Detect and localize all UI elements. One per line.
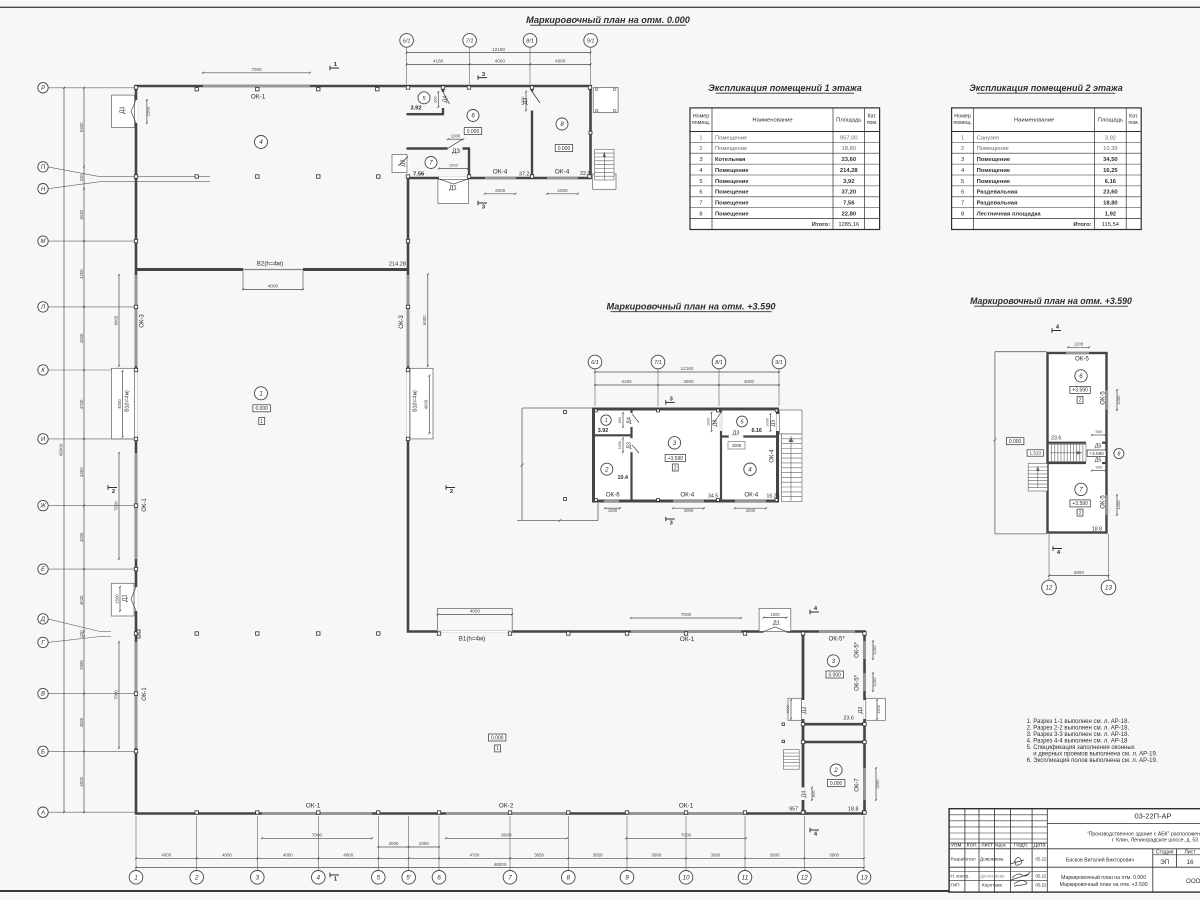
svg-text:Разработал: Разработал	[951, 857, 976, 862]
svg-text:2000: 2000	[495, 188, 506, 193]
svg-text:1500: 1500	[449, 163, 459, 168]
svg-text:2: 2	[1079, 398, 1082, 404]
svg-text:4: 4	[317, 875, 321, 882]
svg-text:И: И	[41, 437, 46, 443]
svg-text:2: 2	[194, 875, 199, 882]
svg-text:0.000: 0.000	[828, 672, 841, 678]
svg-text:7.56: 7.56	[413, 172, 425, 178]
svg-text:11: 11	[742, 875, 749, 882]
svg-text:ОК-4: ОК-4	[493, 169, 508, 176]
svg-text:Маркировочный план на отм. +3.: Маркировочный план на отм. +3.590	[606, 302, 776, 312]
svg-text:6. Экспликация полов выполнена: 6. Экспликация полов выполнена см. л. АР…	[1027, 758, 1158, 764]
svg-text:3: 3	[961, 157, 964, 163]
svg-text:9/1: 9/1	[775, 360, 783, 366]
svg-text:7000: 7000	[681, 833, 692, 838]
svg-text:ОК-5: ОК-5	[1100, 495, 1106, 509]
svg-text:Помещение: Помещение	[715, 179, 749, 185]
svg-text:П: П	[41, 165, 46, 171]
svg-text:5: 5	[377, 875, 381, 882]
svg-text:1200: 1200	[1116, 395, 1121, 405]
svg-text:1: 1	[134, 875, 138, 882]
svg-text:6: 6	[1079, 373, 1083, 380]
svg-text:5. Спецификация заполнения око: 5. Спецификация заполнения оконных	[1027, 745, 1135, 751]
svg-text:Котельная: Котельная	[715, 157, 745, 163]
svg-text:4000: 4000	[222, 852, 232, 857]
svg-text:3: 3	[699, 157, 702, 163]
svg-text:6: 6	[699, 190, 702, 196]
svg-text:1: 1	[604, 418, 607, 424]
svg-text:Помещение: Помещение	[977, 146, 1009, 152]
svg-text:0.000: 0.000	[830, 781, 843, 787]
svg-text:Кол.: Кол.	[967, 843, 978, 849]
svg-text:Экспликация помещений 2 этажа: Экспликация помещений 2 этажа	[969, 83, 1122, 93]
svg-text:4: 4	[259, 139, 263, 146]
svg-text:+3.590: +3.590	[1090, 451, 1105, 456]
svg-text:8: 8	[961, 212, 964, 218]
svg-text:1000: 1000	[707, 418, 711, 426]
svg-text:1000: 1000	[520, 96, 525, 106]
svg-text:4000: 4000	[555, 59, 566, 64]
svg-text:13: 13	[1105, 585, 1112, 592]
svg-text:4000: 4000	[495, 59, 506, 64]
svg-text:12: 12	[801, 875, 809, 882]
svg-text:В1(h=4м): В1(h=4м)	[413, 390, 419, 412]
svg-text:3. Разрез 3-3 выполнен см. л.: 3. Разрез 3-3 выполнен см. л. АР-18.	[1027, 732, 1130, 738]
svg-text:34,50: 34,50	[1103, 157, 1118, 163]
svg-text:3850: 3850	[593, 852, 603, 857]
svg-text:помещ.: помещ.	[692, 120, 711, 126]
svg-text:6: 6	[961, 190, 964, 196]
svg-text:1500: 1500	[770, 612, 780, 617]
svg-text:48000: 48000	[494, 862, 507, 867]
svg-text:Помещение: Помещение	[715, 135, 747, 141]
svg-text:05.22: 05.22	[1036, 857, 1048, 862]
svg-text:1200: 1200	[1074, 342, 1084, 347]
svg-text:Помещение: Помещение	[715, 146, 747, 152]
svg-text:7/1: 7/1	[466, 38, 474, 44]
svg-text:214.28: 214.28	[389, 262, 406, 268]
svg-text:1000: 1000	[786, 705, 790, 713]
svg-text:Площадь: Площадь	[1098, 118, 1123, 124]
svg-text:Маркировочный план на отм. 0.0: Маркировочный план на отм. 0.000	[526, 15, 691, 25]
svg-text:ОК-1: ОК-1	[142, 687, 148, 701]
svg-text:2000: 2000	[557, 188, 568, 193]
svg-text:А: А	[40, 810, 45, 816]
svg-text:2: 2	[699, 146, 702, 152]
svg-text:4000: 4000	[161, 852, 171, 857]
svg-text:8: 8	[699, 212, 702, 218]
svg-text:Санузел: Санузел	[977, 135, 1000, 141]
svg-text:0.000: 0.000	[467, 129, 480, 135]
svg-text:957,00: 957,00	[840, 135, 858, 141]
svg-text:3: 3	[673, 440, 677, 447]
svg-text:5': 5'	[406, 875, 412, 882]
svg-text:10: 10	[682, 875, 690, 882]
svg-text:2000: 2000	[746, 508, 756, 513]
svg-text:Изм.: Изм.	[951, 843, 963, 849]
svg-text:ОК-1: ОК-1	[679, 803, 694, 810]
svg-text:+3.590: +3.590	[668, 456, 684, 462]
svg-text:7000: 7000	[251, 67, 262, 72]
svg-text:4200: 4200	[79, 532, 84, 542]
svg-text:48000: 48000	[59, 443, 64, 456]
svg-text:1005: 1005	[732, 443, 742, 448]
svg-text:3900: 3900	[711, 852, 721, 857]
svg-text:4700: 4700	[79, 399, 84, 409]
svg-text:Итого:: Итого:	[812, 222, 830, 228]
svg-text:10.4: 10.4	[618, 475, 629, 481]
svg-text:4160: 4160	[621, 379, 632, 384]
svg-text:Маркировочный план на отм. 0.0: Маркировочный план на отм. 0.000	[1061, 874, 1146, 881]
svg-text:Лист: Лист	[981, 843, 993, 849]
svg-text:1: 1	[961, 135, 964, 141]
svg-text:ОК-1: ОК-1	[251, 94, 266, 101]
svg-text:957: 957	[789, 807, 798, 813]
svg-text:В: В	[41, 692, 45, 698]
svg-text:4200: 4200	[79, 269, 84, 279]
svg-text:ОК-5: ОК-5	[1075, 355, 1089, 362]
svg-text:ОК-5: ОК-5	[1100, 391, 1106, 405]
svg-text:37,20: 37,20	[842, 190, 857, 196]
svg-text:3900: 3900	[770, 852, 780, 857]
svg-text:Д5: Д5	[771, 420, 777, 427]
svg-text:7000: 7000	[114, 501, 119, 511]
svg-text:Раздевальная: Раздевальная	[977, 201, 1018, 207]
svg-text:Д1: Д1	[773, 621, 780, 627]
svg-text:Д5: Д5	[1095, 458, 1102, 464]
svg-text:23.6: 23.6	[843, 716, 854, 722]
svg-text:Помещение: Помещение	[715, 168, 749, 174]
svg-text:115,54: 115,54	[1102, 222, 1120, 228]
svg-text:23,60: 23,60	[1103, 190, 1118, 196]
svg-text:1000: 1000	[451, 133, 461, 138]
svg-text:Номер: Номер	[693, 114, 710, 120]
svg-text:Раздевальная: Раздевальная	[977, 190, 1018, 196]
svg-text:Помещение: Помещение	[715, 212, 749, 218]
svg-text:Помещение: Помещение	[715, 190, 749, 196]
svg-text:ОК-1: ОК-1	[142, 498, 148, 512]
svg-text:ОК-2: ОК-2	[499, 803, 514, 810]
svg-text:7000: 7000	[312, 833, 323, 838]
svg-text:ОК-1: ОК-1	[306, 803, 321, 810]
svg-text:Помещение: Помещение	[977, 168, 1011, 174]
svg-text:и дверных проемов выполнена см: и дверных проемов выполнена см. л. АР-19…	[1027, 752, 1158, 758]
svg-text:2: 2	[112, 489, 115, 495]
svg-text:Д1: Д1	[120, 106, 126, 114]
svg-text:12160: 12160	[681, 366, 694, 371]
svg-text:Д4: Д4	[626, 417, 632, 424]
svg-text:1: 1	[260, 419, 263, 425]
svg-text:800: 800	[618, 417, 622, 423]
svg-text:г. Клин, Ленинградское шоссе,: г. Клин, Ленинградское шоссе, д. 53	[1112, 838, 1198, 844]
svg-text:18,80: 18,80	[842, 146, 857, 152]
svg-text:ОК-5*: ОК-5*	[855, 674, 861, 690]
svg-text:5: 5	[699, 179, 702, 185]
svg-text:1285,16: 1285,16	[838, 222, 859, 228]
svg-text:2000: 2000	[389, 841, 399, 846]
svg-text:1500: 1500	[146, 106, 151, 116]
svg-text:7000: 7000	[114, 690, 119, 700]
svg-text:3850: 3850	[534, 852, 544, 857]
svg-text:18.8: 18.8	[1092, 527, 1102, 533]
svg-text:7,56: 7,56	[843, 201, 855, 207]
svg-text:6000: 6000	[422, 315, 427, 325]
svg-text:4000: 4000	[79, 776, 84, 786]
svg-text:7: 7	[699, 201, 702, 207]
svg-text:4000: 4000	[117, 399, 122, 409]
svg-text:03-22П-АР: 03-22П-АР	[1134, 812, 1171, 821]
svg-text:Подл.: Подл.	[1014, 843, 1029, 849]
svg-text:8/1: 8/1	[526, 38, 534, 44]
svg-text:Экспликация помещений 1 этажа: Экспликация помещений 1 этажа	[708, 83, 861, 93]
svg-text:1000: 1000	[618, 441, 622, 449]
svg-text:Итого:: Итого:	[1073, 222, 1091, 228]
svg-text:В1(h=4м): В1(h=4м)	[125, 390, 131, 412]
svg-text:1: 1	[259, 391, 263, 398]
svg-text:ООО “Аль: ООО “Аль	[1186, 878, 1200, 885]
svg-text:0.000: 0.000	[558, 146, 571, 152]
svg-text:М: М	[41, 239, 46, 245]
svg-text:13: 13	[860, 875, 868, 882]
svg-text:Кат.: Кат.	[1129, 114, 1138, 120]
svg-text:9/1: 9/1	[587, 38, 595, 44]
svg-text:4000: 4000	[79, 717, 84, 727]
svg-text:800: 800	[434, 96, 438, 102]
svg-text:Коротаев: Коротаев	[982, 883, 1002, 888]
svg-text:2: 2	[450, 489, 453, 495]
svg-text:Помещение: Помещение	[977, 157, 1011, 163]
svg-text:12: 12	[1046, 585, 1053, 592]
svg-text:Номер: Номер	[954, 114, 971, 120]
svg-text:4700: 4700	[470, 852, 480, 857]
svg-text:Кат.: Кат.	[868, 114, 877, 120]
svg-text:37.2: 37.2	[519, 172, 530, 178]
svg-text:4160: 4160	[433, 59, 444, 64]
svg-text:ОК-5*: ОК-5*	[829, 636, 846, 643]
svg-text:05.22: 05.22	[1036, 883, 1048, 888]
svg-text:4000: 4000	[744, 379, 755, 384]
svg-text:ОК-3: ОК-3	[399, 315, 405, 329]
svg-text:Н. контр.: Н. контр.	[951, 874, 970, 879]
svg-text:320: 320	[79, 174, 84, 182]
svg-text:6/1: 6/1	[403, 38, 411, 44]
svg-text:1000: 1000	[876, 704, 881, 714]
svg-text:Д: Д	[40, 617, 46, 623]
svg-text:4000: 4000	[283, 852, 293, 857]
svg-text:2000: 2000	[419, 841, 429, 846]
svg-text:ОК-3: ОК-3	[140, 314, 146, 328]
svg-text:Наименование: Наименование	[752, 118, 792, 124]
svg-text:пом.: пом.	[1128, 120, 1139, 126]
svg-text:Н: Н	[41, 187, 46, 193]
svg-text:7000: 7000	[681, 612, 692, 617]
svg-text:0.000: 0.000	[255, 406, 268, 412]
svg-text:Басков Виталий Викторович: Басков Виталий Викторович	[1066, 857, 1134, 864]
svg-text:9: 9	[625, 875, 629, 882]
svg-text:3,92: 3,92	[1105, 135, 1116, 141]
svg-text:05.22: 05.22	[1036, 874, 1048, 879]
svg-text:2. Разрез 2-2 выполнен см. л.: 2. Разрез 2-2 выполнен см. л. АР-18.	[1027, 726, 1130, 732]
svg-text:ОК-4: ОК-4	[555, 169, 570, 176]
svg-text:4. Разрез 4-4 выполнен см. л.: 4. Разрез 4-4 выполнен см. л. АР-18	[1027, 739, 1129, 745]
svg-text:Помещение: Помещение	[977, 179, 1011, 185]
svg-text:2: 2	[674, 465, 677, 471]
svg-text:пом.: пом.	[867, 120, 878, 126]
svg-text:Д3: Д3	[452, 148, 460, 155]
svg-text:1,92: 1,92	[1105, 212, 1116, 218]
svg-text:4000: 4000	[470, 609, 481, 614]
svg-text:4200: 4200	[79, 333, 84, 343]
svg-text:7: 7	[508, 875, 512, 882]
svg-text:Д5: Д5	[1095, 444, 1102, 450]
svg-text:Д2: Д2	[401, 160, 407, 167]
svg-text:5: 5	[961, 179, 964, 185]
svg-text:0.000: 0.000	[1009, 439, 1022, 445]
svg-text:В1(h=4м): В1(h=4м)	[459, 636, 485, 643]
svg-text:2: 2	[604, 467, 609, 473]
svg-text:1: 1	[699, 135, 702, 141]
svg-text:Д4: Д4	[802, 791, 808, 798]
svg-text:4000: 4000	[268, 283, 279, 288]
svg-text:Площадь: Площадь	[836, 118, 861, 124]
svg-text:2: 2	[1079, 510, 1082, 516]
svg-text:Р: Р	[41, 86, 45, 92]
svg-text:Д4: Д4	[443, 96, 449, 103]
svg-text:Маркировочный план на отм. +3.: Маркировочный план на отм. +3.590	[970, 296, 1132, 306]
svg-text:ОК-7: ОК-7	[855, 778, 861, 792]
svg-text:214,28: 214,28	[840, 168, 859, 174]
svg-text:7: 7	[961, 201, 964, 207]
svg-text:18,80: 18,80	[1103, 201, 1118, 207]
svg-text:Стадия: Стадия	[1156, 850, 1174, 856]
svg-text:В2(h=4м): В2(h=4м)	[257, 261, 283, 268]
svg-text:№док.: №док.	[994, 843, 1006, 848]
svg-text:Д2: Д2	[802, 707, 808, 714]
svg-text:Д2: Д2	[858, 707, 864, 714]
svg-text:4000: 4000	[343, 852, 353, 857]
svg-text:+3.590: +3.590	[1072, 501, 1088, 507]
svg-text:Маркировочный план на отм. +3.: Маркировочный план на отм. +3.590	[1060, 881, 1148, 888]
svg-text:3900: 3900	[1074, 570, 1085, 575]
svg-text:ОК-1: ОК-1	[680, 636, 695, 643]
svg-text:ЭП: ЭП	[1160, 859, 1170, 866]
svg-text:Д3: Д3	[626, 442, 632, 449]
svg-text:7: 7	[1079, 487, 1083, 494]
svg-text:6: 6	[437, 875, 441, 882]
svg-text:4000: 4000	[424, 399, 429, 409]
svg-text:+3.590: +3.590	[1072, 388, 1088, 394]
svg-text:23,60: 23,60	[842, 157, 857, 163]
svg-text:12160: 12160	[492, 47, 505, 52]
svg-text:8: 8	[567, 875, 571, 882]
svg-text:2: 2	[961, 146, 964, 152]
svg-text:3.92: 3.92	[598, 428, 609, 434]
svg-text:2000: 2000	[684, 508, 694, 513]
svg-text:Ж: Ж	[39, 504, 46, 510]
svg-text:Д1: Д1	[123, 594, 129, 602]
svg-text:900: 900	[1096, 465, 1103, 470]
svg-text:К: К	[41, 368, 45, 374]
svg-text:6.16: 6.16	[751, 428, 762, 434]
svg-text:Помещение: Помещение	[715, 201, 749, 207]
svg-text:2: 2	[833, 768, 838, 774]
svg-text:помещ.: помещ.	[953, 120, 972, 126]
svg-text:16: 16	[1186, 859, 1194, 866]
svg-text:1. Разрез 1-1 выполнен см. л.: 1. Разрез 1-1 выполнен см. л. АР-18.	[1027, 719, 1130, 725]
svg-text:16,25: 16,25	[1103, 168, 1118, 174]
svg-text:3: 3	[256, 875, 260, 882]
svg-text:ОК-6: ОК-6	[606, 492, 620, 499]
svg-text:4030: 4030	[79, 595, 84, 605]
svg-text:3,92: 3,92	[843, 179, 854, 185]
svg-text:8/1: 8/1	[715, 360, 723, 366]
svg-text:ОК-4: ОК-4	[770, 449, 776, 463]
svg-text:3980: 3980	[79, 660, 84, 670]
svg-text:1200: 1200	[1116, 500, 1121, 510]
svg-text:1: 1	[496, 746, 499, 752]
svg-text:Лестничная площадка: Лестничная площадка	[977, 212, 1042, 218]
svg-text:4000: 4000	[683, 379, 694, 384]
svg-text:2000: 2000	[875, 779, 880, 789]
svg-text:4: 4	[748, 466, 752, 473]
svg-text:ОК-4: ОК-4	[744, 492, 758, 499]
svg-text:1000: 1000	[766, 418, 770, 426]
svg-text:3900: 3900	[652, 852, 662, 857]
svg-text:Дисеппаева: Дисеппаева	[980, 874, 1005, 879]
svg-text:ОК-4: ОК-4	[680, 492, 694, 499]
svg-text:3.92: 3.92	[410, 106, 421, 112]
svg-text:6/1: 6/1	[591, 360, 599, 366]
svg-text:6000: 6000	[114, 315, 119, 325]
svg-text:Б: Б	[41, 749, 45, 755]
svg-text:7/1: 7/1	[654, 360, 662, 366]
svg-text:Доиранева: Доиранева	[980, 857, 1004, 862]
svg-text:Д3: Д3	[733, 430, 740, 436]
svg-text:4030: 4030	[79, 209, 84, 219]
svg-text:Д1: Д1	[449, 186, 457, 192]
svg-text:1000: 1000	[608, 508, 618, 513]
svg-text:22,80: 22,80	[842, 212, 857, 218]
svg-text:6,16: 6,16	[1105, 179, 1117, 185]
svg-text:8000: 8000	[501, 833, 512, 838]
svg-text:1500: 1500	[115, 594, 120, 604]
svg-text:23.6: 23.6	[1051, 436, 1061, 442]
svg-text:Л: Л	[40, 305, 46, 311]
svg-text:1200: 1200	[872, 645, 877, 655]
svg-text:18.8: 18.8	[848, 807, 859, 813]
svg-text:Д3: Д3	[713, 420, 719, 427]
svg-text:1.510: 1.510	[1030, 451, 1042, 456]
svg-text:0.000: 0.000	[491, 735, 504, 741]
svg-text:10,39: 10,39	[1103, 146, 1118, 152]
svg-text:900: 900	[1096, 429, 1103, 434]
svg-text:320: 320	[79, 630, 84, 638]
svg-text:Дата: Дата	[1034, 843, 1046, 849]
svg-text:1200: 1200	[872, 677, 877, 687]
svg-text:Лист: Лист	[1184, 850, 1196, 856]
svg-text:4200: 4200	[79, 467, 84, 477]
svg-text:5300: 5300	[79, 122, 84, 132]
svg-text:800: 800	[811, 790, 816, 797]
svg-text:ОК-5*: ОК-5*	[855, 641, 861, 657]
svg-text:Наименование: Наименование	[1014, 118, 1054, 124]
svg-text:ГИП: ГИП	[951, 883, 960, 888]
svg-text:3900: 3900	[829, 852, 839, 857]
